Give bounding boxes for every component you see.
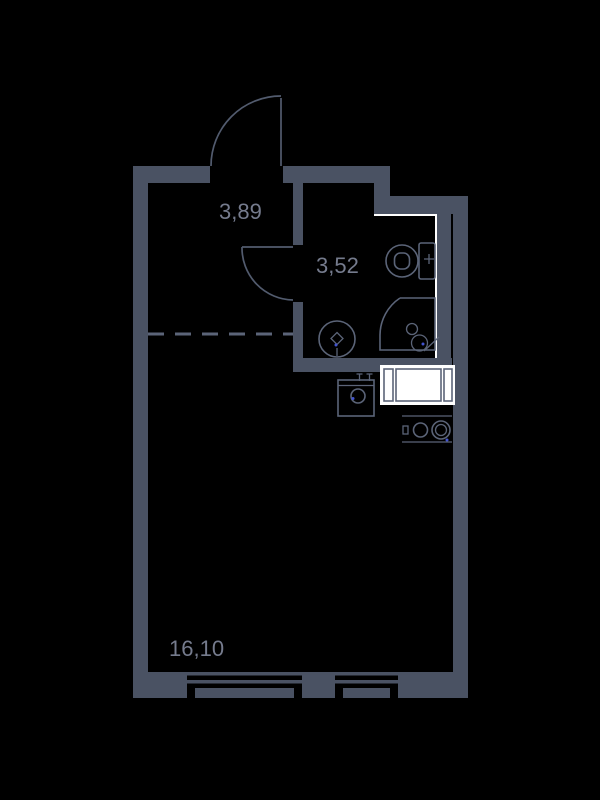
kitchen-sink-icon (338, 374, 374, 416)
wall-top-mid (283, 166, 390, 183)
cooktop-two-burner-icon (402, 416, 452, 442)
room-area-label-main-room: 16,10 (169, 638, 224, 660)
wall-top-left (133, 166, 210, 183)
room-area-label-hallway: 3,89 (219, 201, 262, 223)
washbasin-icon (319, 321, 355, 357)
room-area-label-bathroom: 3,52 (316, 255, 359, 277)
shower-stall-icon (380, 298, 439, 351)
wall-left (133, 166, 148, 698)
burner-icon (432, 421, 450, 439)
window-large-icon (187, 672, 302, 698)
floor-plan: 3,89 3,52 16,10 (0, 0, 600, 800)
toilet-icon (386, 243, 435, 279)
burner-icon (414, 423, 428, 437)
duct-column (437, 214, 451, 358)
entrance-door-arc (211, 96, 281, 166)
entrance-door-swing-icon (211, 96, 281, 166)
bathroom-door-arc (242, 247, 293, 300)
duct-white-edge (374, 214, 437, 216)
window-small-icon (335, 672, 398, 698)
wall-bottom-pier-right (398, 672, 468, 698)
bathroom-wall-left-upper (293, 183, 303, 245)
wall-bottom-pier-left (133, 672, 187, 698)
water-point-icon (424, 254, 434, 264)
washing-machine-icon (380, 365, 455, 405)
outer-walls (133, 166, 468, 698)
wall-top-step (374, 166, 390, 214)
wall-right (453, 196, 468, 698)
wall-bottom-pier-mid (302, 672, 335, 698)
floor-plan-drawing (0, 0, 600, 800)
bathroom-door-swing-icon (242, 247, 293, 300)
